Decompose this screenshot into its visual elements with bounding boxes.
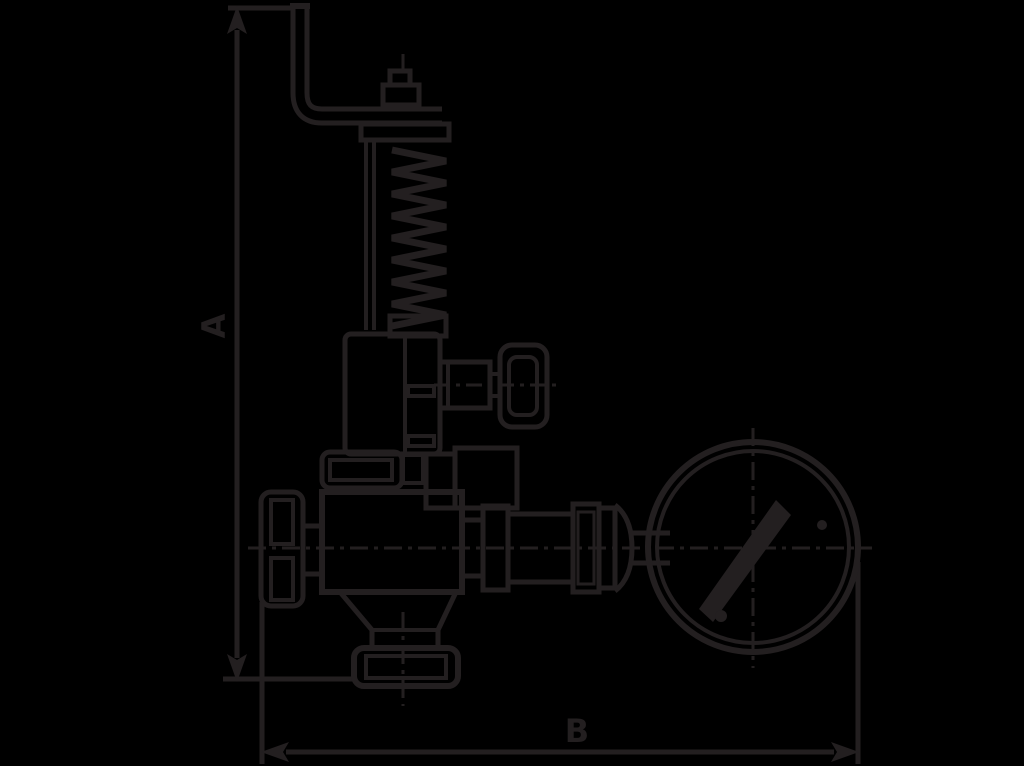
bonnet bbox=[345, 334, 440, 454]
dimension-a-label: A bbox=[195, 313, 233, 338]
pipe-ring bbox=[599, 508, 615, 588]
dim-b-arrow-left bbox=[261, 742, 289, 762]
upper-flange bbox=[322, 448, 517, 508]
gauge-screw-right bbox=[817, 520, 827, 530]
drawing-canvas: A B bbox=[0, 0, 1024, 766]
gauge-needle bbox=[699, 500, 791, 622]
spring-top-plate bbox=[361, 124, 449, 140]
dim-b-arrow-right bbox=[831, 742, 859, 762]
spring-assembly bbox=[361, 124, 449, 336]
test-gag-handle bbox=[434, 345, 560, 427]
technical-drawing: A B bbox=[0, 0, 1024, 766]
outlet-flange bbox=[354, 648, 458, 686]
dimension-b-label: B bbox=[565, 712, 589, 750]
valve-body bbox=[322, 492, 462, 650]
centerlines bbox=[248, 54, 872, 706]
spring-coil bbox=[392, 150, 446, 326]
gauge-screw-left bbox=[715, 610, 727, 622]
lever-nut bbox=[383, 71, 419, 105]
